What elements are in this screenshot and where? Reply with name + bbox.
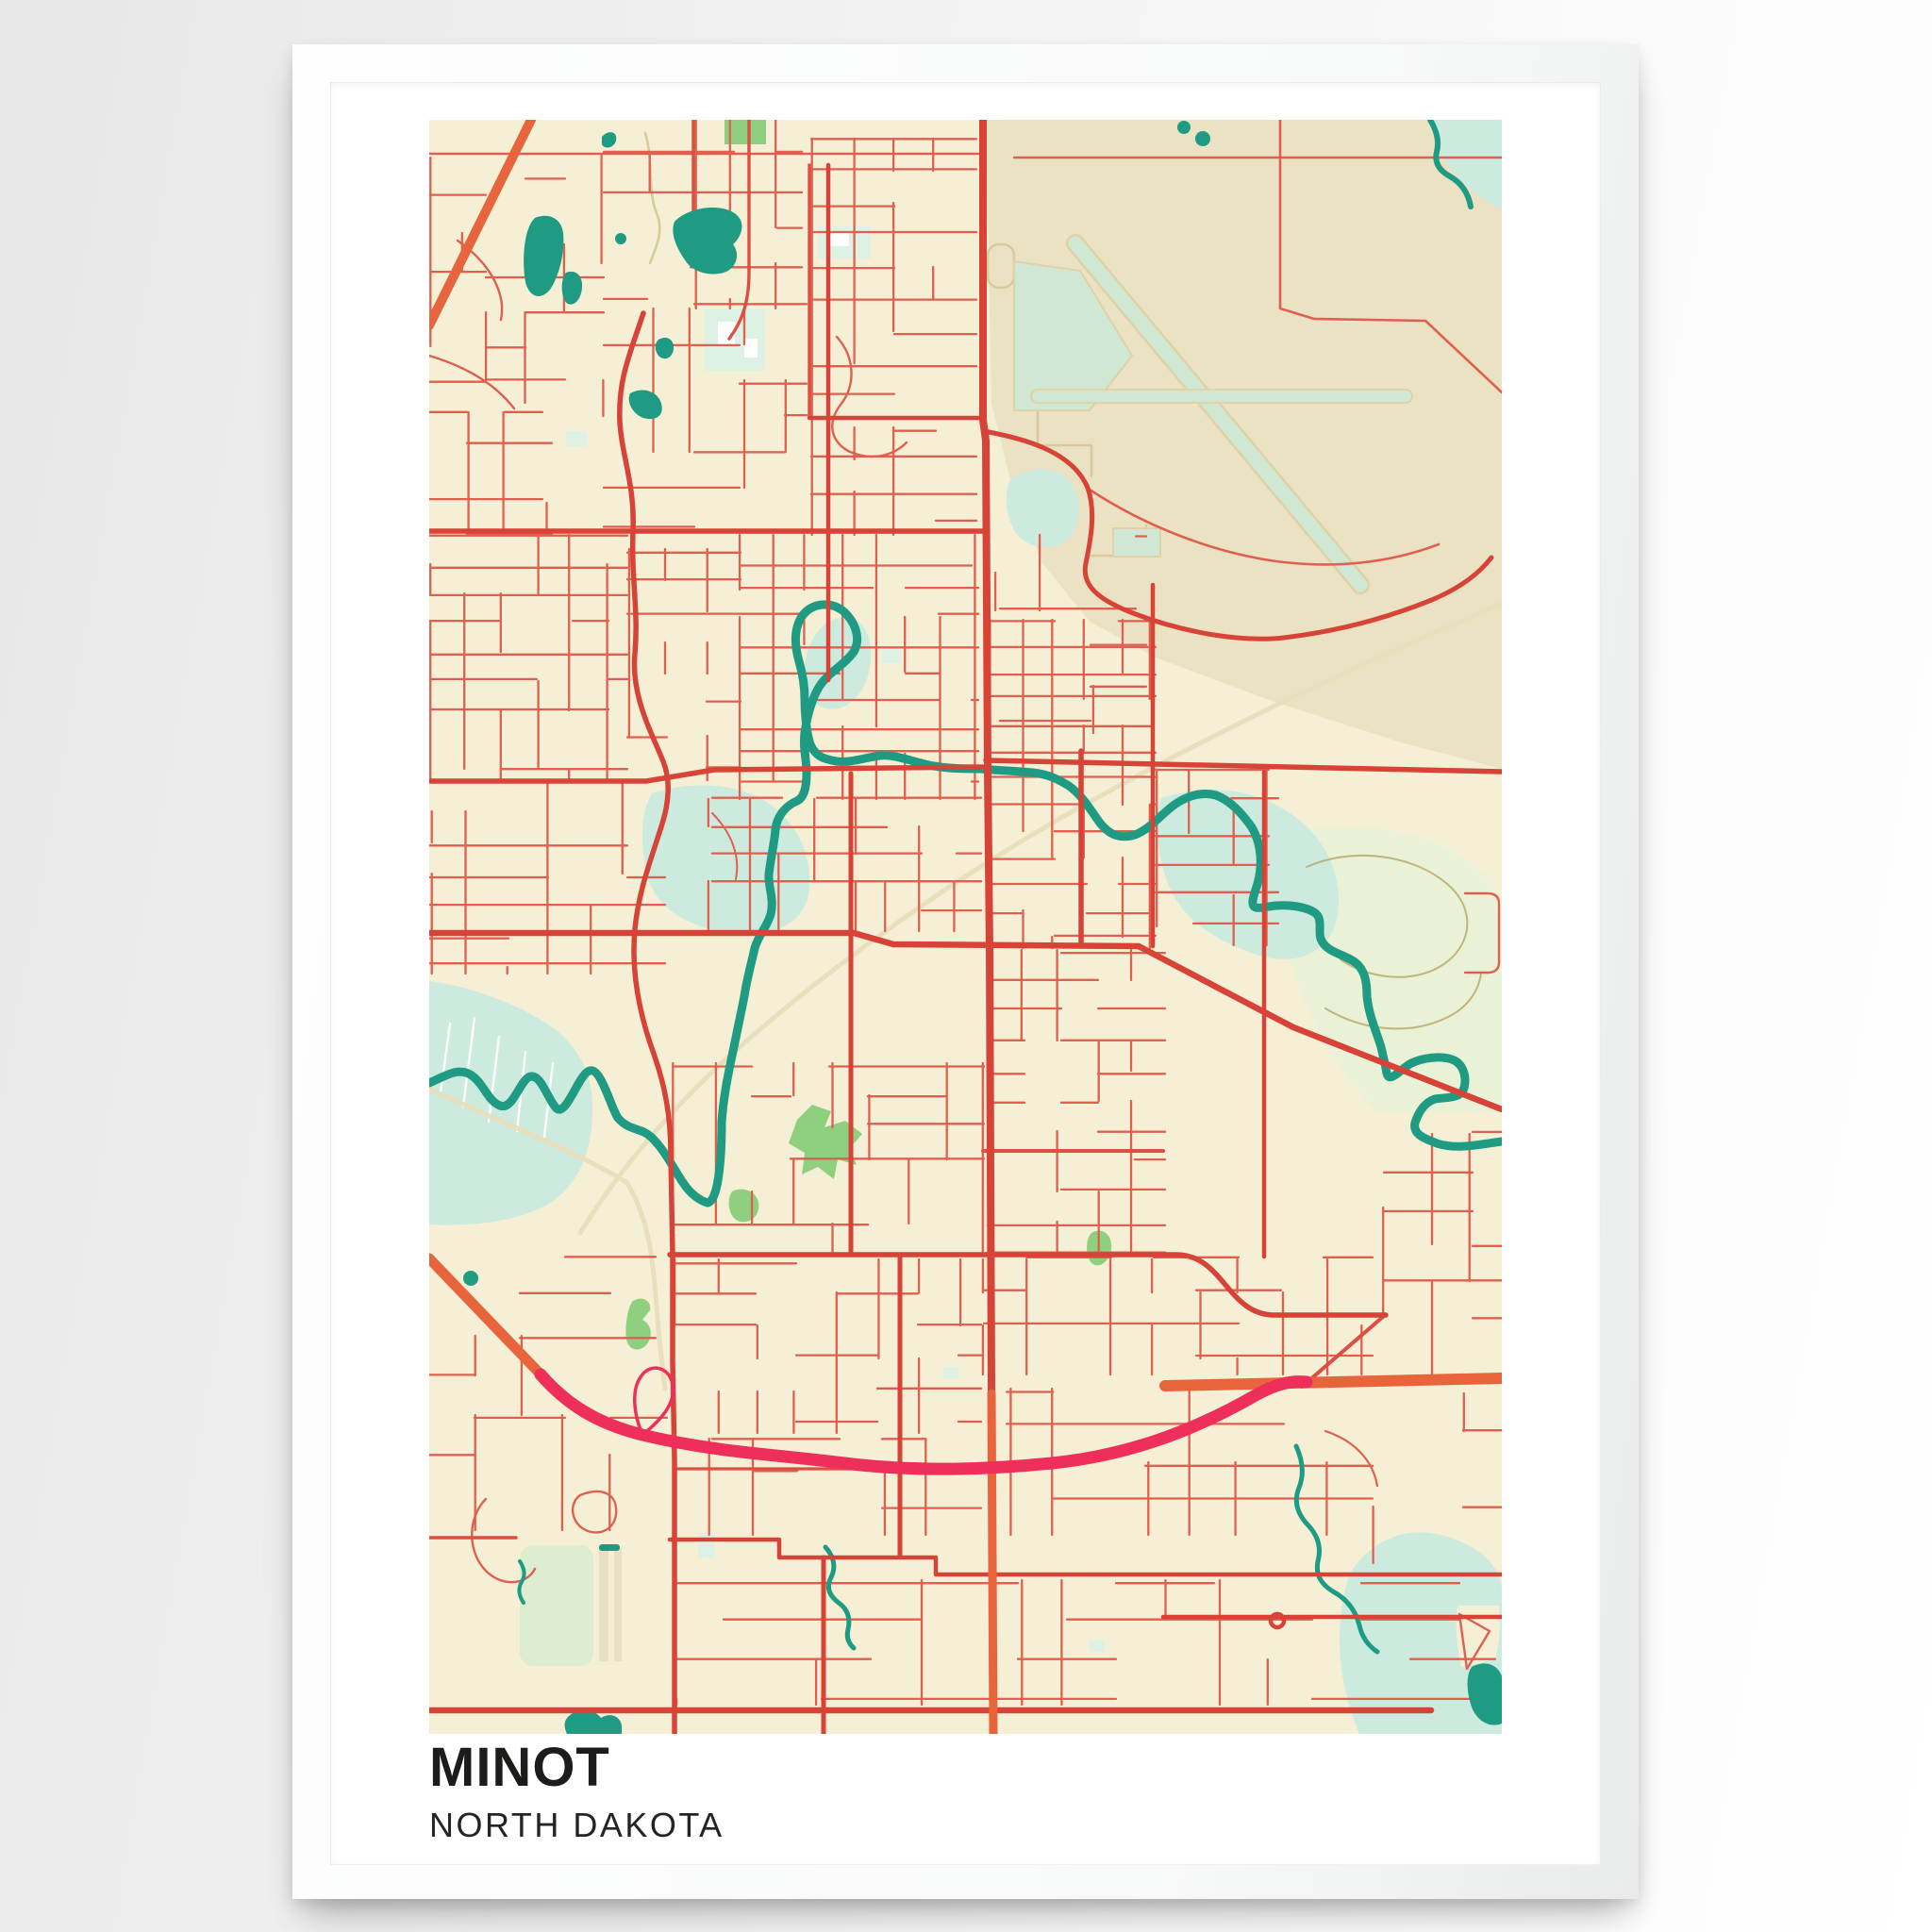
city-map-graphic	[429, 120, 1502, 1734]
state-name: NORTH DAKOTA	[429, 1806, 724, 1845]
city-name: MINOT	[429, 1740, 724, 1797]
poster-frame: MINOT NORTH DAKOTA	[292, 44, 1639, 1899]
poster-caption: MINOT NORTH DAKOTA	[429, 1740, 724, 1845]
page-background: MINOT NORTH DAKOTA	[0, 0, 1932, 1932]
poster-mat: MINOT NORTH DAKOTA	[330, 82, 1601, 1865]
